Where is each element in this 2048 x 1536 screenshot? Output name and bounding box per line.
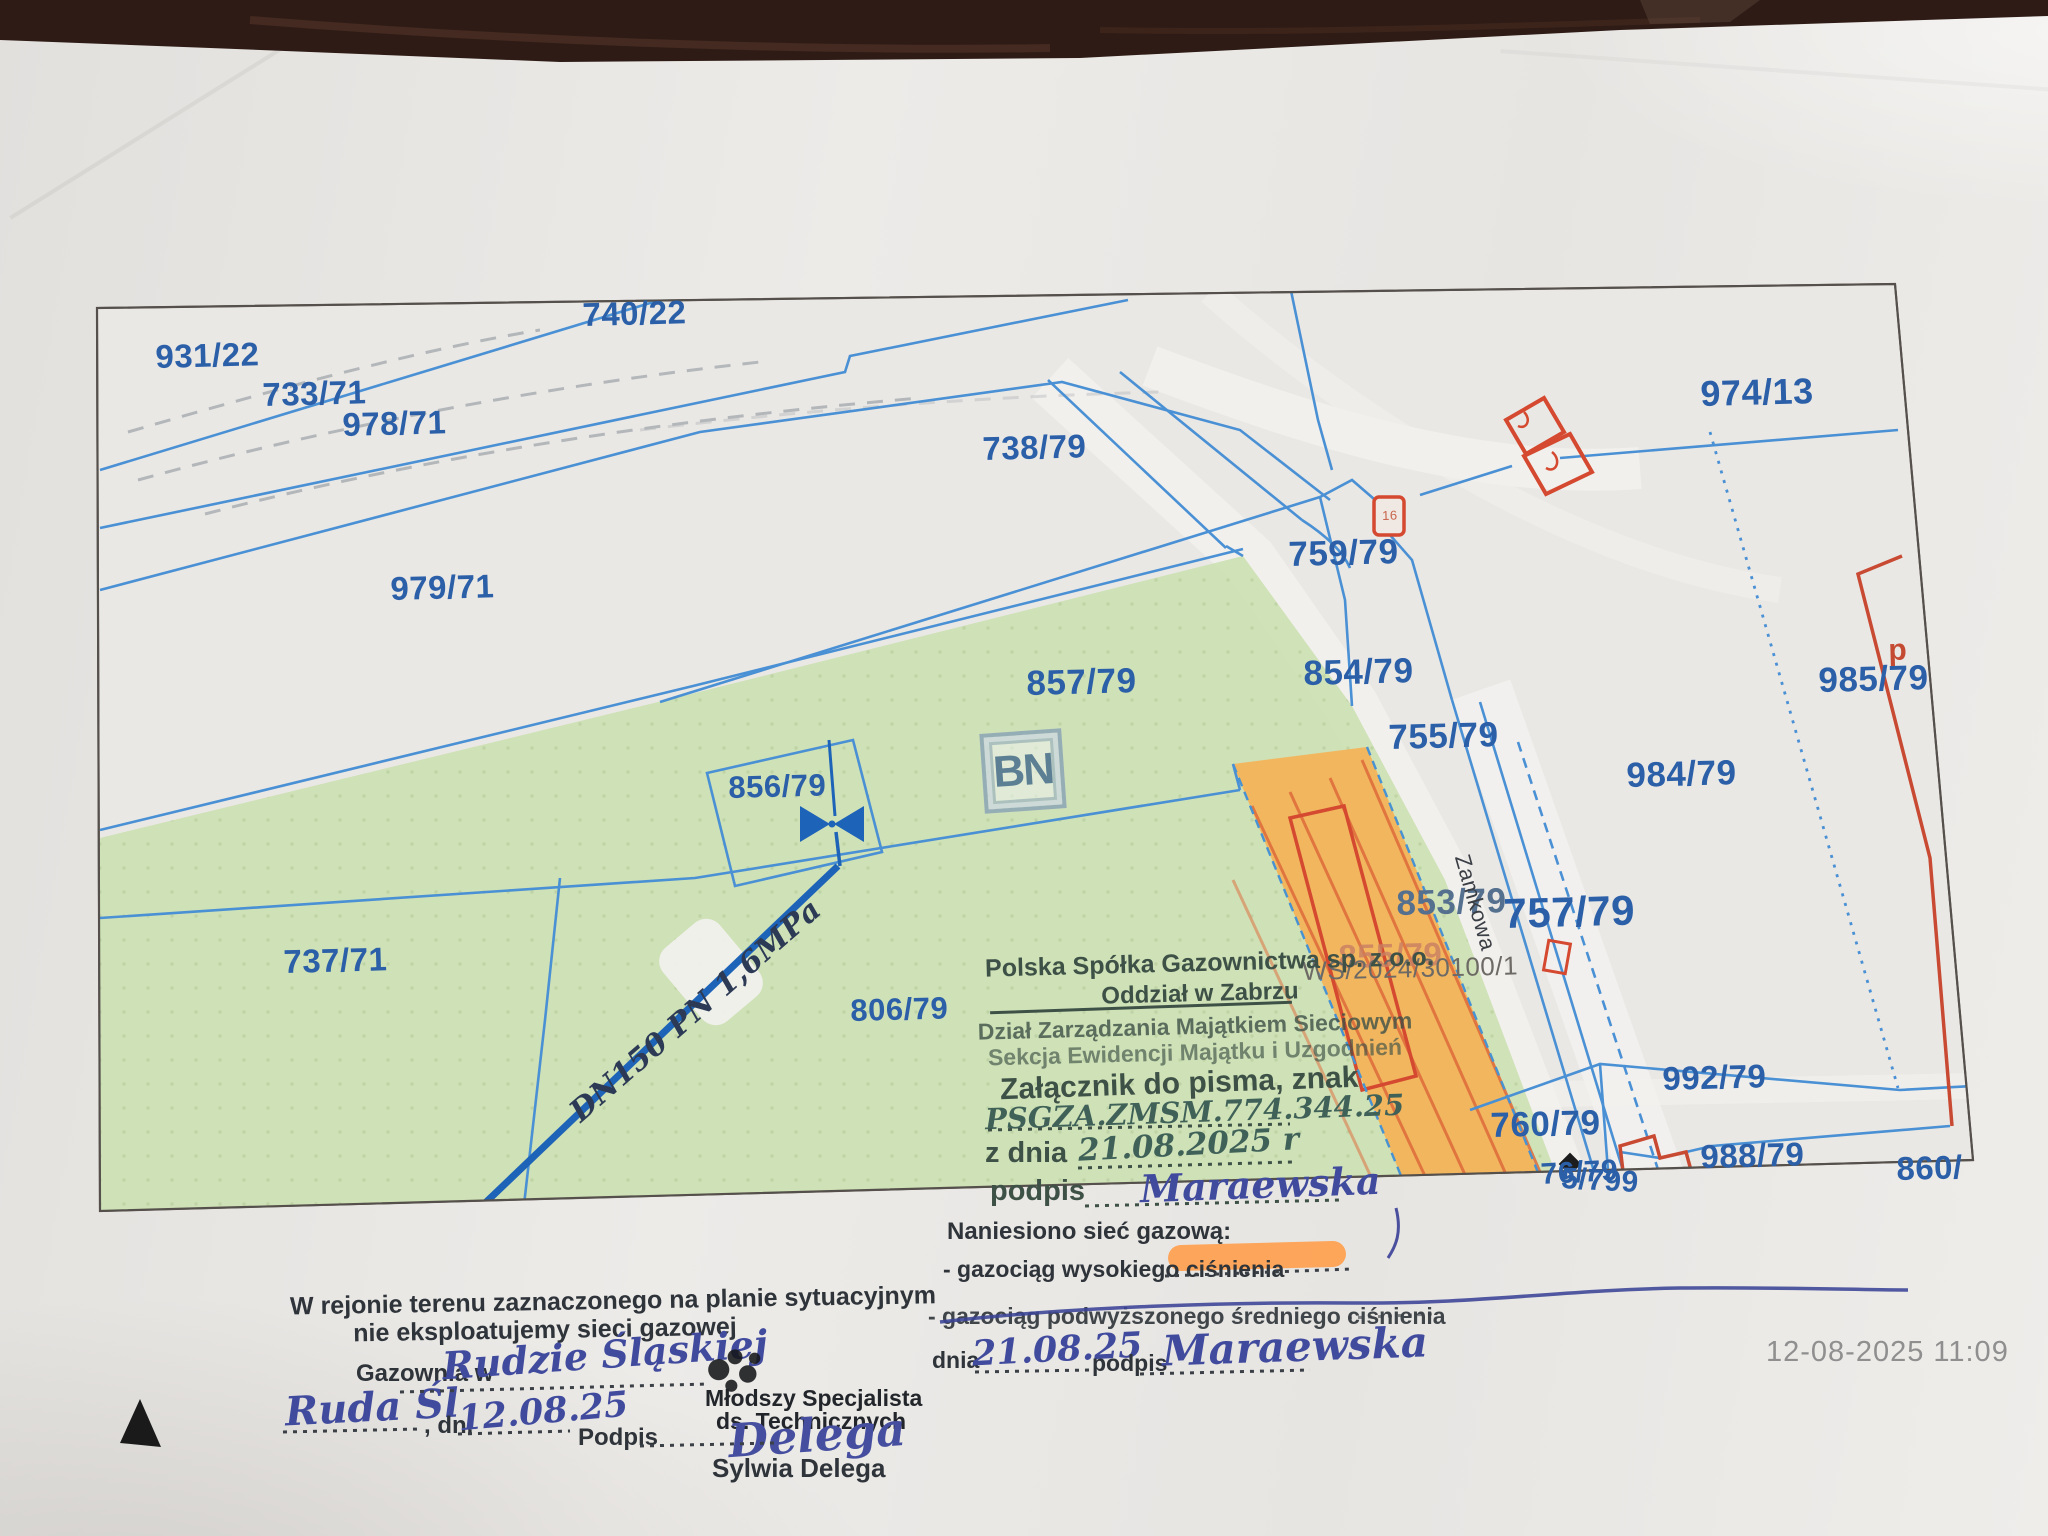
gas-note-signature-label: podpis — [1092, 1350, 1167, 1376]
stamp-signature-value: Maraewska — [1139, 1162, 1381, 1208]
note-signature-label: Podpis — [578, 1424, 658, 1452]
stamp-date-label: z dnia — [985, 1138, 1067, 1168]
bn-watermark: BN — [979, 728, 1066, 814]
gas-note-title: Naniesiono sieć gazową: — [947, 1218, 1231, 1246]
stamp-signature-label: podpis — [990, 1176, 1085, 1206]
note-signer-name: Sylwia Delega — [712, 1454, 885, 1484]
gas-note-signature-value: Maraewska — [1161, 1321, 1428, 1372]
photo-timestamp: 12-08-2025 11:09 — [1766, 1336, 2009, 1369]
photographed-document: { "photo": { "timestamp": "12-08-2025 11… — [0, 0, 2048, 1536]
hydrant-16-icon — [1374, 497, 1404, 535]
bn-watermark-text: BN — [992, 744, 1055, 798]
gas-note-item-high: - gazociąg wysokiego ciśnienia — [943, 1256, 1284, 1282]
